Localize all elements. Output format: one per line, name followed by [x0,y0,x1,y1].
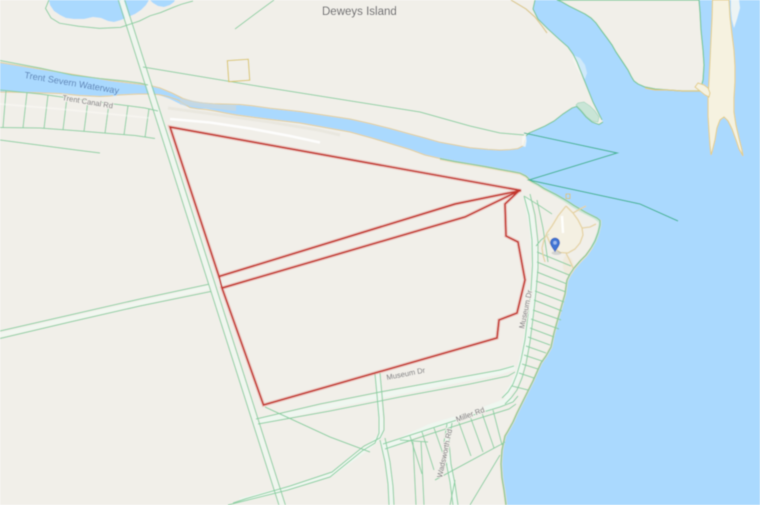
svg-text:Deweys Island: Deweys Island [322,6,397,18]
